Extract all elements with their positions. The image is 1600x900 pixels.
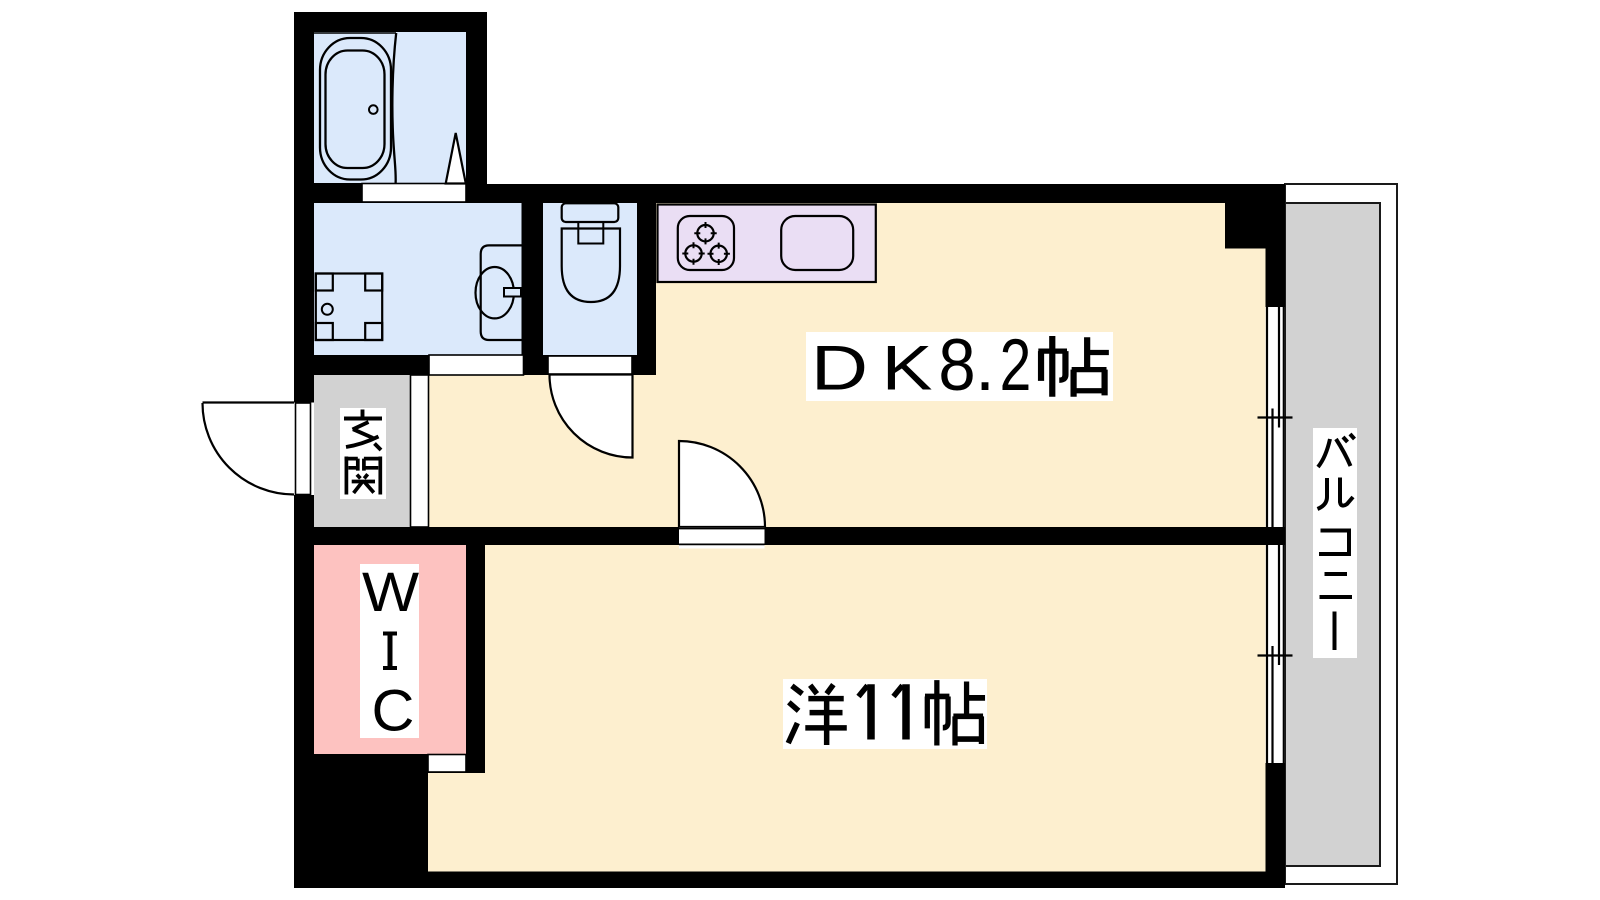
svg-text:C: C [372, 679, 415, 743]
svg-text:.: . [975, 326, 995, 406]
svg-text:W: W [362, 561, 419, 623]
svg-text:8: 8 [938, 324, 975, 405]
svg-text:2: 2 [1000, 324, 1032, 405]
svg-text:D: D [811, 333, 868, 403]
svg-text:K: K [882, 333, 933, 403]
